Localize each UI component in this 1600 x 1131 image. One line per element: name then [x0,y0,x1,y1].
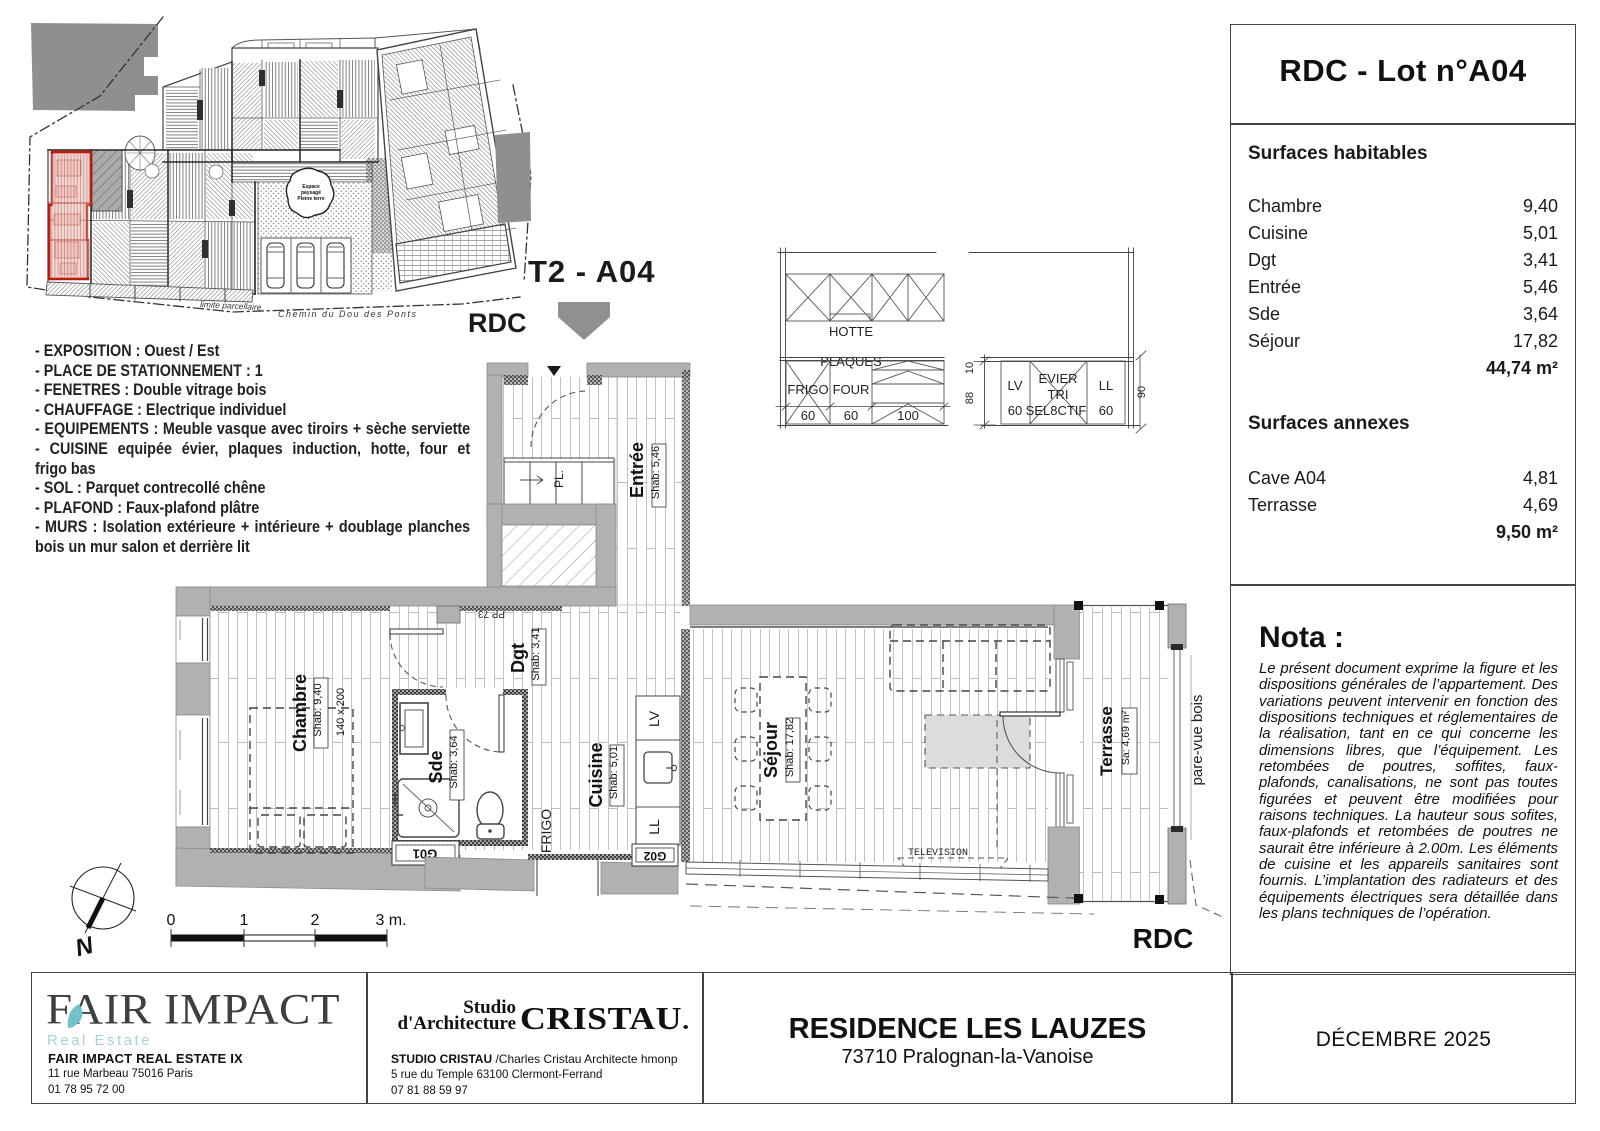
svg-text:0: 0 [167,912,176,929]
svg-text:60: 60 [1008,403,1022,418]
svg-text:Cuisine: Cuisine [586,742,606,807]
svg-text:EVIER: EVIER [1038,371,1077,386]
svg-text:90: 90 [1136,386,1148,398]
svg-text:HOTTE: HOTTE [829,324,873,339]
svg-text:LL: LL [646,819,662,835]
svg-text:Chemin du Dou des Ponts: Chemin du Dou des Ponts [278,309,418,319]
svg-text:Sa: 4,69 m²: Sa: 4,69 m² [1120,710,1132,765]
svg-text:Dgt: Dgt [508,643,528,673]
svg-text:Chambre: Chambre [290,674,310,752]
svg-text:Pleine terre: Pleine terre [297,196,324,202]
svg-text:LV: LV [646,710,662,727]
svg-text:140 x 200: 140 x 200 [335,688,347,736]
svg-text:60: 60 [844,408,858,423]
svg-text:Shab: 9,40: Shab: 9,40 [312,683,324,736]
svg-text:Entrée: Entrée [627,442,647,498]
svg-text:limite parcellaire: limite parcellaire [200,299,262,312]
svg-text:G02: G02 [643,849,666,863]
svg-text:2: 2 [311,912,320,929]
svg-text:Shab: 5,01: Shab: 5,01 [608,746,620,799]
svg-text:Shab: 5,46: Shab: 5,46 [650,446,662,499]
svg-text:Shab: 3,64: Shab: 3,64 [448,735,460,788]
svg-text:88: 88 [964,392,976,404]
svg-text:60: 60 [801,408,815,423]
svg-text:60: 60 [1099,403,1113,418]
svg-text:PL.: PL. [552,470,566,488]
svg-text:100: 100 [897,408,919,423]
svg-text:Terrasse: Terrasse [1097,706,1116,776]
svg-text:TRI: TRI [1048,387,1069,402]
svg-text:RDC: RDC [1133,923,1194,954]
svg-text:SEL8CTIF: SEL8CTIF [1026,403,1087,418]
svg-text:1: 1 [240,912,249,929]
svg-text:TELEVISION: TELEVISION [908,848,968,859]
svg-text:FRIGO: FRIGO [787,382,828,397]
svg-text:LV: LV [1008,378,1023,393]
svg-text:PP 73.: PP 73. [475,608,505,619]
svg-text:LL: LL [1099,378,1113,393]
svg-text:N: N [72,932,96,963]
svg-text:Sde: Sde [426,750,446,783]
svg-text:Séjour: Séjour [761,722,781,778]
svg-text:pare-vue bois: pare-vue bois [1189,695,1206,786]
svg-text:Shab: 17,82: Shab: 17,82 [784,718,796,777]
svg-text:FOUR: FOUR [833,382,870,397]
svg-text:FRIGO: FRIGO [538,809,554,853]
svg-text:Shab: 3,41: Shab: 3,41 [530,627,542,680]
svg-text:3 m.: 3 m. [375,912,406,929]
svg-text:10: 10 [964,362,976,374]
